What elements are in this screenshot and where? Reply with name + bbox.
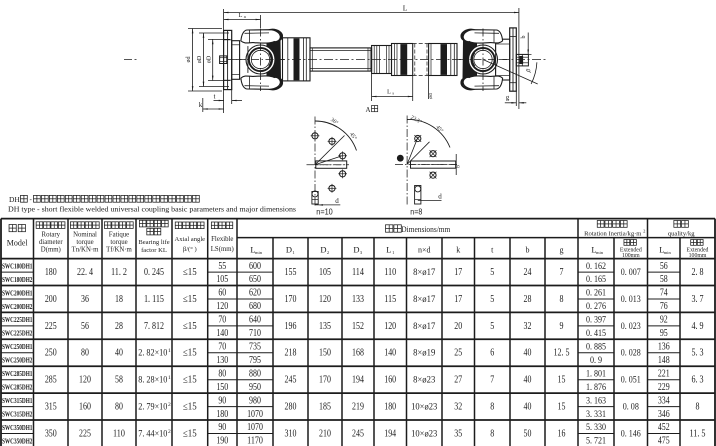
svg-text:8: 8 bbox=[490, 401, 494, 412]
svg-text:16: 16 bbox=[558, 428, 566, 439]
svg-text:36°: 36° bbox=[329, 116, 339, 126]
svg-text:194: 194 bbox=[384, 428, 396, 439]
svg-text:Dimensions/mm: Dimensions/mm bbox=[401, 225, 451, 234]
svg-text:2: 2 bbox=[168, 429, 171, 435]
svg-text:22. 4: 22. 4 bbox=[77, 267, 93, 278]
svg-text:SWC350DH2: SWC350DH2 bbox=[2, 436, 33, 445]
svg-text:100mm: 100mm bbox=[689, 253, 707, 259]
svg-text:≤15: ≤15 bbox=[183, 401, 197, 412]
svg-text:45°: 45° bbox=[348, 131, 358, 141]
svg-text:80: 80 bbox=[115, 401, 123, 412]
svg-text:229: 229 bbox=[658, 382, 670, 393]
svg-text:9: 9 bbox=[560, 321, 564, 332]
svg-text:0. 028: 0. 028 bbox=[621, 348, 641, 359]
svg-text:40: 40 bbox=[524, 348, 532, 359]
svg-text:1. 801: 1. 801 bbox=[586, 368, 606, 379]
svg-text:0. 013: 0. 013 bbox=[621, 294, 641, 305]
svg-text:7. 812: 7. 812 bbox=[144, 321, 164, 332]
svg-text:74: 74 bbox=[660, 288, 668, 299]
svg-text:5. 721: 5. 721 bbox=[586, 436, 606, 446]
svg-text:170: 170 bbox=[285, 294, 297, 305]
svg-text:56: 56 bbox=[81, 321, 89, 332]
svg-text:200: 200 bbox=[45, 294, 57, 305]
svg-text:SWC285DH1: SWC285DH1 bbox=[2, 369, 33, 378]
svg-text:17: 17 bbox=[454, 267, 462, 278]
svg-text:1170: 1170 bbox=[247, 436, 263, 446]
svg-text:17: 17 bbox=[454, 294, 462, 305]
svg-text:g: g bbox=[506, 93, 510, 101]
svg-text:factor KL: factor KL bbox=[141, 247, 167, 254]
svg-text:β/(° ): β/(° ) bbox=[183, 246, 197, 253]
svg-text:0. 146: 0. 146 bbox=[621, 428, 641, 439]
svg-text:D: D bbox=[286, 245, 292, 255]
svg-text:a: a bbox=[244, 14, 246, 19]
svg-text:56: 56 bbox=[660, 261, 668, 272]
svg-text:8×ø17: 8×ø17 bbox=[413, 322, 436, 332]
svg-text:280: 280 bbox=[285, 401, 297, 412]
svg-text:100mm: 100mm bbox=[622, 253, 640, 259]
svg-text:0. 415: 0. 415 bbox=[586, 328, 606, 339]
svg-text:quality/kg: quality/kg bbox=[668, 230, 695, 237]
svg-text:k: k bbox=[199, 101, 203, 109]
svg-text:L: L bbox=[386, 245, 391, 255]
svg-text:70: 70 bbox=[218, 315, 226, 326]
svg-text:60: 60 bbox=[218, 288, 226, 299]
svg-text:Axial angle: Axial angle bbox=[175, 236, 206, 243]
svg-text:Fatique: Fatique bbox=[109, 232, 129, 239]
svg-text:245: 245 bbox=[285, 375, 297, 386]
svg-text:3. 7: 3. 7 bbox=[691, 294, 703, 305]
svg-text:24: 24 bbox=[524, 267, 532, 278]
svg-text:40: 40 bbox=[115, 348, 123, 359]
svg-text:950: 950 bbox=[249, 382, 261, 393]
svg-text:180: 180 bbox=[216, 409, 228, 420]
svg-text:160: 160 bbox=[79, 401, 91, 412]
svg-text:133: 133 bbox=[352, 294, 364, 305]
svg-text:2. 82×10: 2. 82×10 bbox=[138, 348, 167, 358]
svg-text:114: 114 bbox=[352, 267, 364, 278]
svg-text:Tf/KN·m: Tf/KN·m bbox=[106, 247, 132, 254]
svg-text:135: 135 bbox=[319, 321, 331, 332]
svg-text:0. 245: 0. 245 bbox=[144, 267, 164, 278]
svg-text:SWC200DH2: SWC200DH2 bbox=[2, 302, 33, 311]
svg-text:80: 80 bbox=[218, 368, 226, 379]
svg-text:DH type - short flexible welde: DH type - short flexible welded universa… bbox=[8, 205, 296, 214]
svg-text:SWC180DH2: SWC180DH2 bbox=[2, 275, 33, 284]
svg-text:b: b bbox=[521, 36, 527, 39]
svg-text:D(mm): D(mm) bbox=[41, 247, 61, 254]
svg-text:≤15: ≤15 bbox=[183, 321, 197, 332]
svg-text:140: 140 bbox=[216, 328, 228, 339]
svg-text:SWC350DH1: SWC350DH1 bbox=[2, 423, 33, 432]
svg-text:SWC285DH2: SWC285DH2 bbox=[2, 383, 33, 392]
svg-text:1070: 1070 bbox=[247, 409, 263, 420]
svg-text:d: d bbox=[335, 197, 339, 205]
svg-text:b: b bbox=[526, 246, 530, 255]
svg-text:5. 3: 5. 3 bbox=[691, 348, 703, 359]
svg-text:diameter: diameter bbox=[39, 239, 64, 246]
svg-text:148: 148 bbox=[658, 355, 670, 366]
svg-text:28: 28 bbox=[115, 321, 123, 332]
svg-text:76: 76 bbox=[660, 301, 668, 312]
svg-text:0. 162: 0. 162 bbox=[586, 261, 606, 272]
svg-text:130: 130 bbox=[216, 355, 228, 366]
svg-text:Bearing life: Bearing life bbox=[138, 239, 169, 246]
svg-text:11. 2: 11. 2 bbox=[111, 267, 127, 278]
svg-text:170: 170 bbox=[319, 375, 331, 386]
svg-text:n=10: n=10 bbox=[316, 208, 333, 217]
svg-text:≤15: ≤15 bbox=[183, 348, 197, 359]
svg-text:4. 9: 4. 9 bbox=[691, 321, 703, 332]
svg-text:600: 600 bbox=[249, 261, 261, 272]
svg-text:40: 40 bbox=[524, 401, 532, 412]
svg-text:120: 120 bbox=[384, 321, 396, 332]
svg-text:180: 180 bbox=[45, 267, 57, 278]
svg-text:180: 180 bbox=[384, 401, 396, 412]
svg-text:185: 185 bbox=[319, 401, 331, 412]
svg-text:680: 680 bbox=[249, 301, 261, 312]
svg-text:Model: Model bbox=[7, 238, 29, 247]
svg-text:Tn/KN·m: Tn/KN·m bbox=[72, 247, 100, 254]
svg-text:D: D bbox=[320, 245, 326, 255]
svg-text:n×d: n×d bbox=[418, 246, 431, 255]
svg-text:8. 28×10: 8. 28×10 bbox=[138, 375, 167, 385]
svg-text:8: 8 bbox=[490, 428, 494, 439]
svg-text:120: 120 bbox=[79, 375, 91, 386]
svg-text:SWC180DH1: SWC180DH1 bbox=[2, 261, 33, 270]
svg-text:0. 165: 0. 165 bbox=[586, 274, 606, 285]
svg-text:22.5°: 22.5° bbox=[409, 114, 423, 126]
svg-text:5: 5 bbox=[490, 321, 494, 332]
svg-text:3: 3 bbox=[360, 250, 363, 255]
svg-text:d: d bbox=[438, 192, 442, 200]
svg-text:45°: 45° bbox=[434, 124, 444, 134]
svg-text:115: 115 bbox=[384, 294, 396, 305]
svg-text:25: 25 bbox=[454, 348, 462, 359]
svg-text:7. 44×10: 7. 44×10 bbox=[138, 428, 167, 438]
svg-text:Rotation Inertia/kg·m: Rotation Inertia/kg·m bbox=[584, 230, 642, 237]
svg-text:3. 163: 3. 163 bbox=[586, 395, 606, 406]
svg-text:2: 2 bbox=[168, 402, 171, 408]
svg-text:58: 58 bbox=[660, 274, 668, 285]
svg-text:40: 40 bbox=[524, 375, 532, 386]
svg-text:150: 150 bbox=[319, 348, 331, 359]
svg-text:ød: ød bbox=[186, 57, 192, 63]
svg-text:221: 221 bbox=[658, 368, 670, 379]
svg-text:≤15: ≤15 bbox=[183, 267, 197, 278]
svg-text:5: 5 bbox=[490, 267, 494, 278]
svg-text:3. 331: 3. 331 bbox=[586, 409, 606, 420]
svg-text:0. 023: 0. 023 bbox=[621, 321, 641, 332]
svg-text:2: 2 bbox=[327, 250, 329, 255]
svg-text:-: - bbox=[30, 196, 33, 204]
svg-text:20: 20 bbox=[454, 321, 462, 332]
svg-text:1: 1 bbox=[292, 250, 294, 255]
svg-text:27: 27 bbox=[454, 375, 462, 386]
svg-text:0. 007: 0. 007 bbox=[621, 267, 641, 278]
svg-text:min: min bbox=[596, 250, 604, 255]
svg-text:0. 08: 0. 08 bbox=[623, 401, 639, 412]
svg-text:15: 15 bbox=[558, 401, 566, 412]
svg-text:0. 276: 0. 276 bbox=[586, 301, 606, 312]
svg-text:8×ø19: 8×ø19 bbox=[413, 349, 436, 359]
svg-text:8×ø17: 8×ø17 bbox=[413, 268, 436, 278]
svg-text:Nominal: Nominal bbox=[73, 232, 97, 239]
svg-text:øD: øD bbox=[197, 55, 203, 63]
svg-text:92: 92 bbox=[660, 315, 668, 326]
svg-text:245: 245 bbox=[352, 428, 364, 439]
svg-text:SWC225DH1: SWC225DH1 bbox=[2, 315, 33, 324]
svg-text:1. 115: 1. 115 bbox=[144, 294, 164, 305]
svg-text:58: 58 bbox=[115, 375, 123, 386]
svg-text:28: 28 bbox=[524, 294, 532, 305]
svg-text:334: 334 bbox=[658, 395, 670, 406]
svg-text:Flexible: Flexible bbox=[211, 236, 233, 243]
svg-text:SWC250DH1: SWC250DH1 bbox=[2, 342, 33, 351]
svg-text:35: 35 bbox=[454, 428, 462, 439]
svg-text:55: 55 bbox=[218, 261, 226, 272]
svg-text:SWC200DH1: SWC200DH1 bbox=[2, 288, 33, 297]
svg-text:120: 120 bbox=[216, 301, 228, 312]
svg-text:110: 110 bbox=[113, 428, 125, 439]
svg-text:105: 105 bbox=[216, 274, 228, 285]
svg-text:70: 70 bbox=[218, 342, 226, 353]
svg-text:6: 6 bbox=[490, 348, 494, 359]
svg-text:160: 160 bbox=[384, 375, 396, 386]
svg-text:136: 136 bbox=[658, 342, 670, 353]
svg-text:2. 79×10: 2. 79×10 bbox=[138, 401, 167, 411]
svg-text:min: min bbox=[664, 250, 672, 255]
svg-text:0. 261: 0. 261 bbox=[586, 288, 606, 299]
svg-text:5: 5 bbox=[490, 294, 494, 305]
svg-text:315: 315 bbox=[45, 401, 57, 412]
svg-text:b: b bbox=[456, 165, 462, 168]
svg-text:Rotary: Rotary bbox=[42, 232, 61, 239]
svg-text:torque: torque bbox=[76, 239, 93, 246]
svg-text:1: 1 bbox=[168, 348, 171, 354]
svg-text:t: t bbox=[491, 246, 494, 255]
svg-text:øD: øD bbox=[206, 55, 212, 63]
svg-text:90: 90 bbox=[218, 395, 226, 406]
svg-text:640: 640 bbox=[249, 315, 261, 326]
svg-text:11. 5: 11. 5 bbox=[689, 428, 705, 439]
svg-text:152: 152 bbox=[352, 321, 364, 332]
svg-text:120: 120 bbox=[319, 294, 331, 305]
svg-text:2. 8: 2. 8 bbox=[691, 267, 703, 278]
svg-text:105: 105 bbox=[319, 267, 331, 278]
svg-text:0. 051: 0. 051 bbox=[621, 375, 641, 386]
svg-text:475: 475 bbox=[658, 436, 670, 446]
svg-text:18: 18 bbox=[115, 294, 123, 305]
svg-text:346: 346 bbox=[658, 409, 670, 420]
svg-text:0. 9: 0. 9 bbox=[590, 355, 602, 366]
svg-text:452: 452 bbox=[658, 422, 670, 433]
svg-text:250: 250 bbox=[45, 348, 57, 359]
svg-text:8: 8 bbox=[696, 401, 700, 412]
svg-text:12. 5: 12. 5 bbox=[553, 348, 569, 359]
svg-text:1. 876: 1. 876 bbox=[586, 382, 606, 393]
svg-text:218: 218 bbox=[285, 348, 297, 359]
svg-text:7: 7 bbox=[560, 267, 564, 278]
svg-text:155: 155 bbox=[285, 267, 297, 278]
svg-text:880: 880 bbox=[249, 368, 261, 379]
svg-text:32: 32 bbox=[454, 401, 462, 412]
svg-text:6. 3: 6. 3 bbox=[691, 375, 703, 386]
svg-text:8: 8 bbox=[560, 294, 564, 305]
svg-text:140: 140 bbox=[384, 348, 396, 359]
svg-text:LS(mm): LS(mm) bbox=[211, 246, 234, 253]
svg-text:SWC315DH2: SWC315DH2 bbox=[2, 409, 33, 418]
svg-text:D: D bbox=[353, 245, 359, 255]
svg-text:196: 196 bbox=[285, 321, 297, 332]
svg-text:0. 397: 0. 397 bbox=[586, 315, 606, 326]
svg-text:A: A bbox=[365, 106, 370, 114]
svg-text:50: 50 bbox=[524, 428, 532, 439]
svg-text:310: 310 bbox=[285, 428, 297, 439]
svg-text:1: 1 bbox=[392, 250, 394, 255]
svg-text:32: 32 bbox=[524, 321, 532, 332]
svg-text:SWC225DH2: SWC225DH2 bbox=[2, 329, 33, 338]
svg-text:110: 110 bbox=[384, 267, 396, 278]
svg-text:≤15: ≤15 bbox=[183, 428, 197, 439]
svg-text:150: 150 bbox=[216, 382, 228, 393]
svg-text:10×ø23: 10×ø23 bbox=[411, 402, 438, 412]
svg-text:350: 350 bbox=[45, 428, 57, 439]
svg-text:ød: ød bbox=[428, 93, 434, 99]
svg-text:194: 194 bbox=[352, 375, 364, 386]
svg-text:219: 219 bbox=[352, 401, 364, 412]
svg-text:SWC315DH1: SWC315DH1 bbox=[2, 396, 33, 405]
svg-text:min: min bbox=[255, 250, 263, 255]
svg-text:L: L bbox=[387, 89, 391, 96]
svg-text:1: 1 bbox=[168, 375, 171, 381]
svg-text:620: 620 bbox=[249, 288, 261, 299]
svg-text:8×ø23: 8×ø23 bbox=[413, 376, 436, 386]
svg-text:650: 650 bbox=[249, 274, 261, 285]
svg-text:L: L bbox=[403, 4, 408, 13]
svg-text:210: 210 bbox=[319, 428, 331, 439]
svg-text:t: t bbox=[214, 93, 216, 101]
svg-text:≤15: ≤15 bbox=[183, 375, 197, 386]
svg-text:≤15: ≤15 bbox=[183, 294, 197, 305]
svg-text:190: 190 bbox=[216, 436, 228, 446]
svg-text:β: β bbox=[526, 68, 533, 73]
svg-text:90: 90 bbox=[218, 422, 226, 433]
svg-text:225: 225 bbox=[79, 428, 91, 439]
svg-text:80: 80 bbox=[81, 348, 89, 359]
svg-text:7: 7 bbox=[490, 375, 494, 386]
svg-text:8×ø17: 8×ø17 bbox=[413, 295, 436, 305]
svg-text:225: 225 bbox=[45, 321, 57, 332]
svg-text:torque: torque bbox=[110, 239, 127, 246]
svg-text:g: g bbox=[560, 246, 564, 255]
svg-text:1070: 1070 bbox=[247, 422, 263, 433]
svg-text:n=8: n=8 bbox=[410, 207, 422, 216]
svg-text:735: 735 bbox=[249, 342, 261, 353]
svg-text:k: k bbox=[456, 246, 460, 255]
svg-text:168: 168 bbox=[352, 348, 364, 359]
svg-text:710: 710 bbox=[249, 328, 261, 339]
svg-text:DH: DH bbox=[9, 195, 20, 204]
svg-text:5. 330: 5. 330 bbox=[586, 422, 606, 433]
svg-text:0. 885: 0. 885 bbox=[586, 342, 606, 353]
svg-text:L: L bbox=[239, 12, 243, 19]
svg-text:795: 795 bbox=[249, 355, 261, 366]
svg-text:95: 95 bbox=[660, 328, 668, 339]
svg-text:36: 36 bbox=[81, 294, 89, 305]
svg-text:980: 980 bbox=[249, 395, 261, 406]
svg-text:285: 285 bbox=[45, 375, 57, 386]
svg-text:2: 2 bbox=[643, 228, 645, 233]
svg-text:15: 15 bbox=[558, 375, 566, 386]
svg-text:s: s bbox=[392, 91, 394, 96]
svg-text:SWC250DH2: SWC250DH2 bbox=[2, 356, 33, 365]
svg-text:10×ø23: 10×ø23 bbox=[411, 429, 438, 439]
